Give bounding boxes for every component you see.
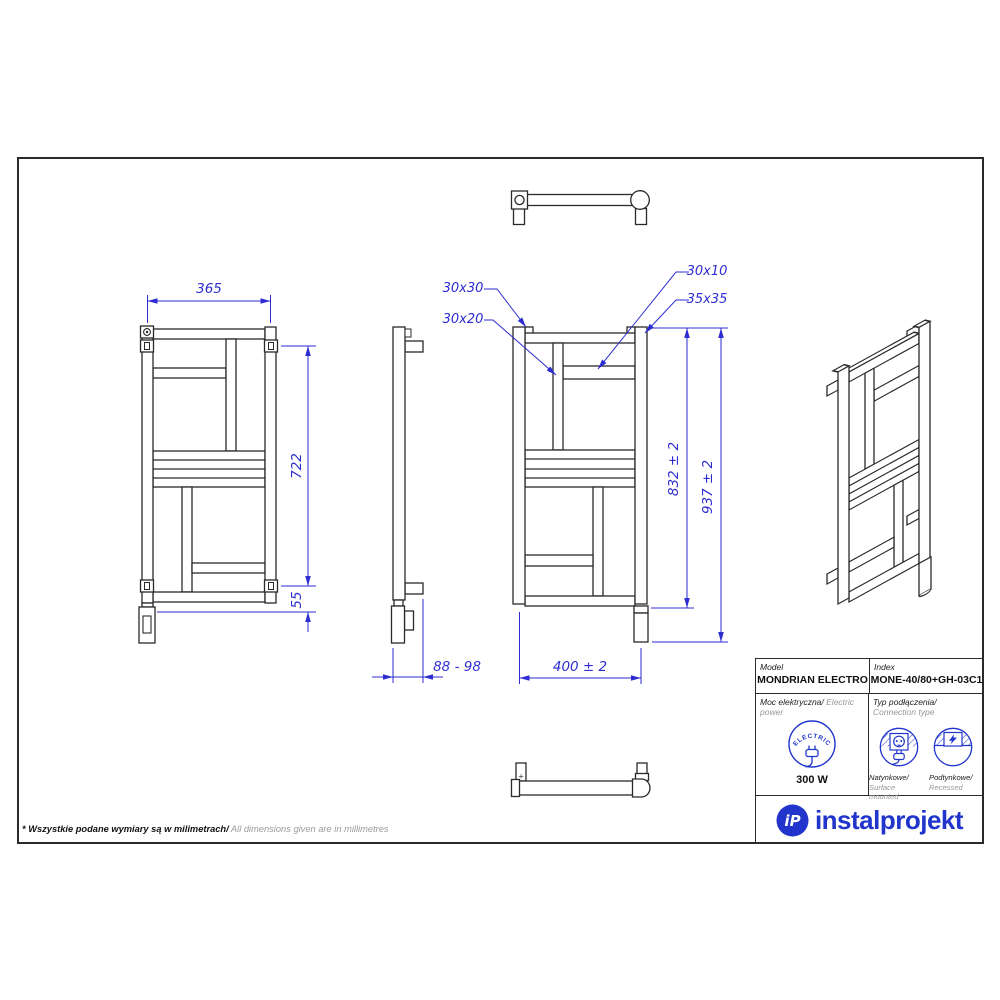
connection-label-en: Connection type	[873, 707, 934, 717]
surface-mounted-icon	[877, 725, 921, 769]
callout-vertical-tube: 30x20	[443, 312, 484, 327]
note-en: All dimensions given are in millimetres	[229, 824, 389, 834]
index-cell: Index MONE-40/80+GH-03C1	[870, 659, 983, 693]
dim-width-left: 365	[196, 281, 222, 297]
recessed-icon	[931, 725, 975, 769]
dim-height-inner: 832 ± 2	[666, 442, 682, 496]
dim-bottom-left: 55	[289, 591, 305, 608]
dim-height-total: 937 ± 2	[700, 460, 716, 514]
callout-cross-tube: 30x10	[687, 264, 728, 279]
callout-top-tube: 30x30	[443, 281, 484, 296]
model-value: MONDRIAN ELECTRO	[756, 674, 869, 686]
recessed-label-pl: Podtynkowe/	[929, 773, 972, 782]
power-cell: Moc elektryczna/ Electric power ELECTRIC	[756, 694, 869, 795]
plug-glyph	[806, 746, 819, 767]
connection-label-pl: Typ podłączenia/	[873, 697, 937, 707]
callout-side-tube: 35x35	[687, 292, 728, 307]
front-view-left	[139, 326, 278, 643]
screw-plus-mark: +	[518, 773, 524, 781]
connection-label: Typ podłączenia/ Connection type	[869, 694, 983, 717]
electric-power-icon: ELECTRIC	[784, 717, 840, 773]
dim-depth: 88 - 98	[433, 659, 481, 675]
spec-row-model-index: Model MONDRIAN ELECTRO Index MONE-40/80+…	[756, 659, 983, 694]
connection-cell: Typ podłączenia/ Connection type	[869, 694, 983, 795]
instalprojekt-logo: iP instalprojekt	[776, 804, 963, 837]
logo-name: instalprojekt	[815, 805, 963, 836]
front-view-center	[513, 327, 648, 642]
logo-mark-icon: iP	[776, 804, 809, 837]
model-label: Model	[756, 659, 869, 672]
spec-row-power-connection: Moc elektryczna/ Electric power ELECTRIC	[756, 694, 983, 796]
logo-mark-text: iP	[784, 812, 800, 830]
power-label: Moc elektryczna/ Electric power	[756, 694, 868, 717]
isometric-view	[827, 317, 931, 649]
dim-height-left: 722	[289, 453, 305, 479]
dim-width-center: 400 ± 2	[553, 659, 607, 675]
top-view	[512, 191, 650, 225]
index-value: MONE-40/80+GH-03C1	[870, 674, 983, 686]
spec-table: Model MONDRIAN ELECTRO Index MONE-40/80+…	[755, 658, 983, 843]
surface-label-pl: Natynkowe/	[869, 773, 909, 782]
power-label-pl: Moc elektryczna/	[760, 697, 824, 707]
recessed-label-en: Recessed	[929, 783, 963, 792]
logo-row: iP instalprojekt	[756, 796, 983, 844]
power-value: 300 W	[796, 774, 828, 786]
datasheet-page: +	[0, 0, 1000, 1000]
svg-text:ELECTRIC: ELECTRIC	[792, 733, 832, 748]
bottom-view: +	[512, 763, 651, 797]
technical-drawing: +	[0, 0, 1000, 1000]
model-cell: Model MONDRIAN ELECTRO	[756, 659, 870, 693]
dimensions-note: * Wszystkie podane wymiary są w milimetr…	[22, 824, 389, 834]
electric-icon-text: ELECTRIC	[792, 733, 832, 748]
index-label: Index	[870, 659, 983, 672]
note-pl: * Wszystkie podane wymiary są w milimetr…	[22, 824, 229, 834]
side-view	[392, 327, 424, 643]
